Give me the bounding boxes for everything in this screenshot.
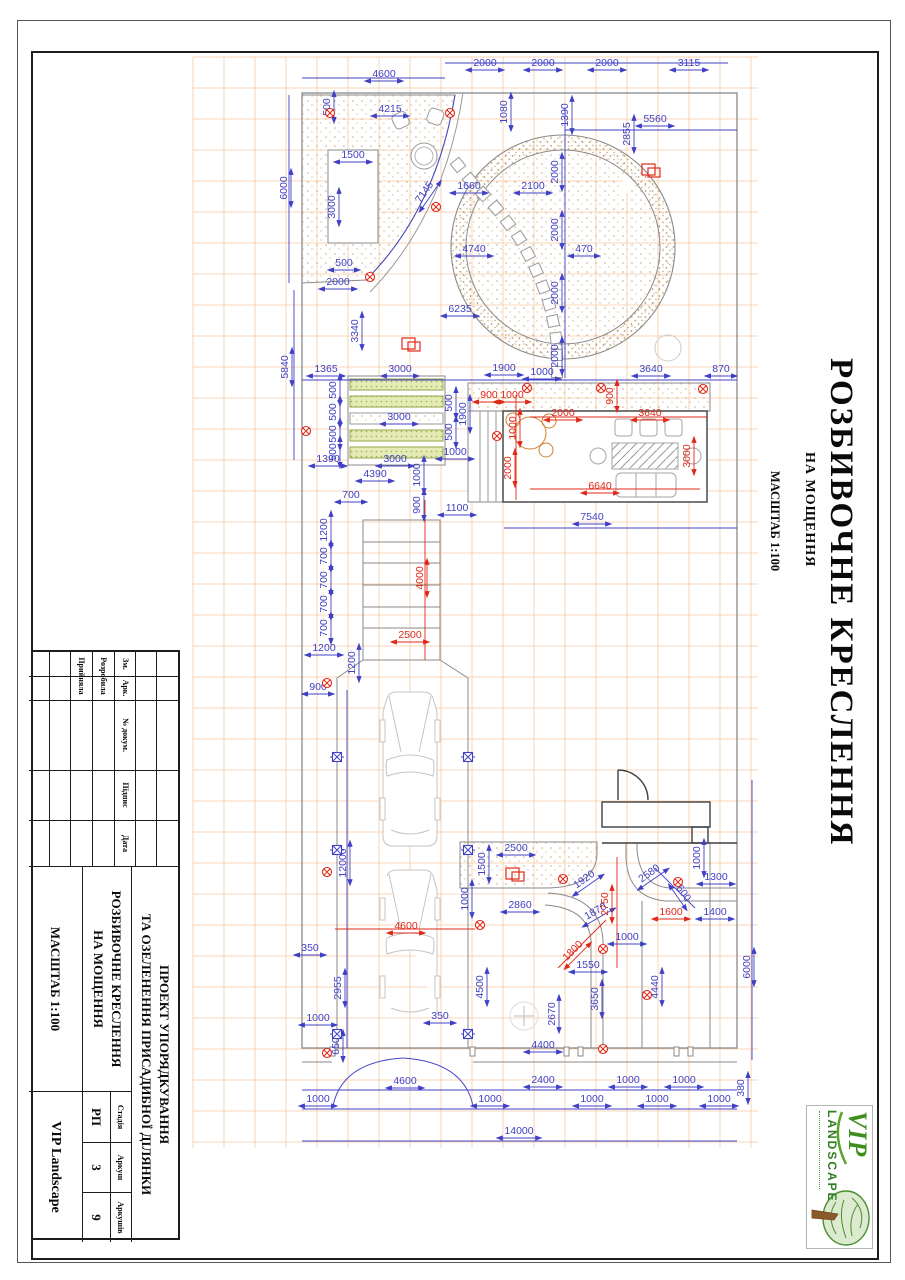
stage-value: РП [82,1092,110,1142]
col-doc: № докум. [115,700,136,770]
col-zm: Зм. [115,652,136,676]
logo-landscape-text: LANDSCAPE [825,1110,839,1203]
drawing-title-line1: РОЗБИВОЧНЕ КРЕСЛЕННЯ [107,891,125,1068]
logo-tagline-line [819,1111,820,1189]
project-title-line2: ТА ОЗЕЛЕНЕННЯ ПРИСАДИБНОЇ ДІЛЯНКИ [137,914,155,1195]
project-title-line1: ПРОЕКТ УПОРЯДКУВАННЯ [155,965,173,1144]
scale-cell: МАСШТАБ 1:100 [29,867,82,1092]
drawing-title-line2: НА МОЩЕННЯ [89,930,107,1028]
page-title: РОЗБИВОЧНЕ КРЕСЛЕННЯ [819,358,863,810]
title-block: Зм. Арк. № докум. Підпис Дата Розробила … [31,650,180,1240]
stage-label: Стадія [110,1092,131,1142]
company-name: VIP Landscape [29,1092,82,1242]
row-accepted: Прийняла [71,652,93,700]
page-scale: МАСШТАБ 1:100 [767,468,783,574]
drawing-sheet: 4600200020002000311550042151080139055602… [0,0,905,1280]
col-ark: Арк. [115,676,136,700]
tree-icon [812,1191,869,1245]
vip-landscape-logo: VIP LANDSCAPE [806,1105,873,1249]
page-subtitle: НА МОЩЕННЯ [800,452,818,552]
sheet-number: 3 [82,1142,110,1192]
row-developed: Розробила [93,652,115,700]
sheets-total: 9 [82,1192,110,1242]
logo-art [807,1106,872,1248]
sheet-label: Аркуш [110,1142,131,1192]
col-date: Дата [115,820,136,867]
sheets-label: Аркушів [110,1192,131,1242]
col-sign: Підпис [115,770,136,820]
leaf-swoosh-icon [838,1112,846,1164]
